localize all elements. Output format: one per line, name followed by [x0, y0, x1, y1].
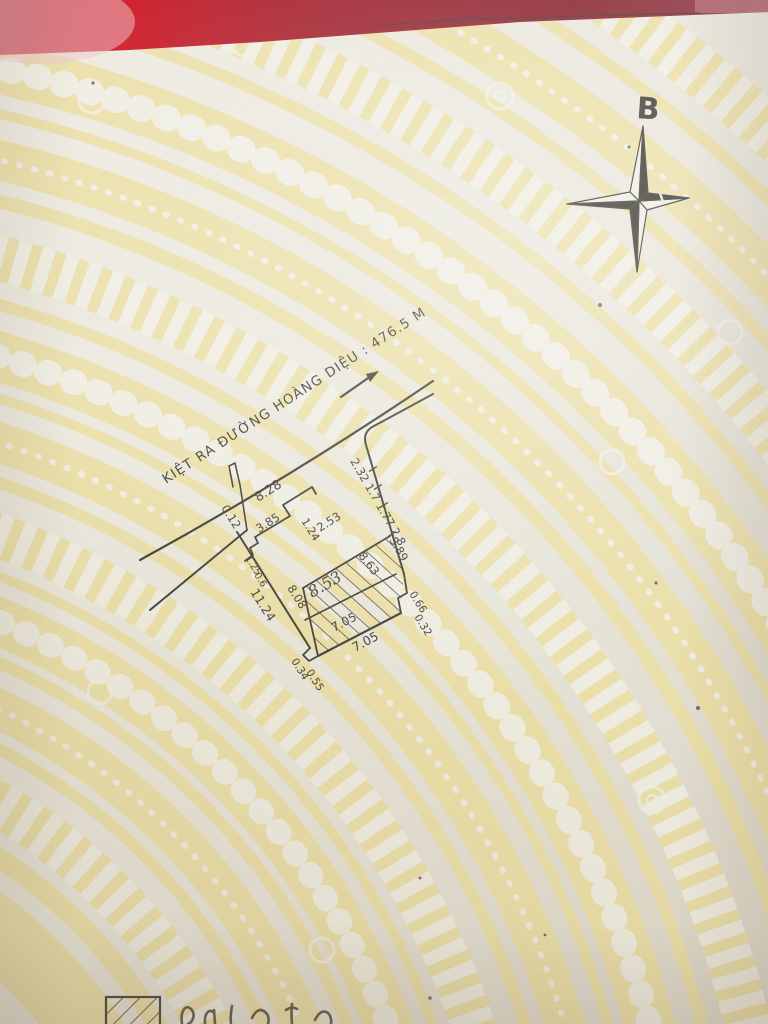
photographed-land-certificate-page: KIỆT RA ĐƯỜNG HOÀNG DIỆU : 476.5 M [0, 0, 768, 1024]
legend-hatched-swatch [106, 997, 160, 1024]
north-label: B [635, 91, 660, 128]
plastic-sheen-right [695, 0, 768, 13]
page-scene: KIỆT RA ĐƯỜNG HOÀNG DIỆU : 476.5 M [0, 0, 768, 1024]
